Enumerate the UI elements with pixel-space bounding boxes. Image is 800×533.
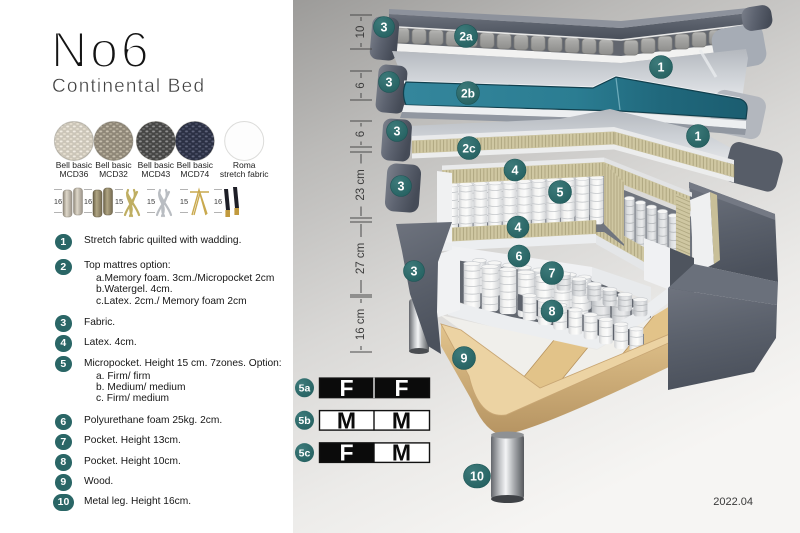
svg-text:27 cm: 27 cm [355,243,367,274]
svg-text:M: M [337,407,356,433]
svg-text:6: 6 [516,250,523,264]
svg-text:7: 7 [549,267,556,281]
svg-text:16 cm: 16 cm [355,309,367,340]
svg-text:3: 3 [381,21,388,35]
svg-text:2c: 2c [462,141,476,155]
svg-text:4: 4 [515,221,522,235]
svg-text:1: 1 [695,130,702,144]
svg-text:8: 8 [549,305,556,319]
svg-text:23 cm: 23 cm [355,169,367,200]
svg-text:2022.04: 2022.04 [713,496,753,508]
svg-text:2a: 2a [459,29,473,43]
svg-text:9: 9 [461,352,468,366]
svg-text:3: 3 [394,125,401,139]
svg-text:4: 4 [512,164,519,178]
svg-text:6: 6 [355,82,367,88]
svg-text:3: 3 [411,265,418,279]
svg-text:5: 5 [557,186,564,200]
svg-text:M: M [392,440,411,466]
svg-text:F: F [394,375,408,401]
svg-text:5b: 5b [298,415,310,427]
svg-text:5a: 5a [299,383,311,395]
svg-text:10: 10 [470,470,484,484]
svg-text:3: 3 [386,76,393,90]
svg-text:F: F [339,440,353,466]
svg-text:10: 10 [355,26,367,39]
svg-text:1: 1 [658,61,665,75]
svg-text:6: 6 [355,131,367,137]
svg-text:M: M [392,407,411,433]
svg-text:5c: 5c [299,447,311,459]
svg-text:3: 3 [398,180,405,194]
svg-text:F: F [339,375,353,401]
svg-text:2b: 2b [461,86,475,100]
